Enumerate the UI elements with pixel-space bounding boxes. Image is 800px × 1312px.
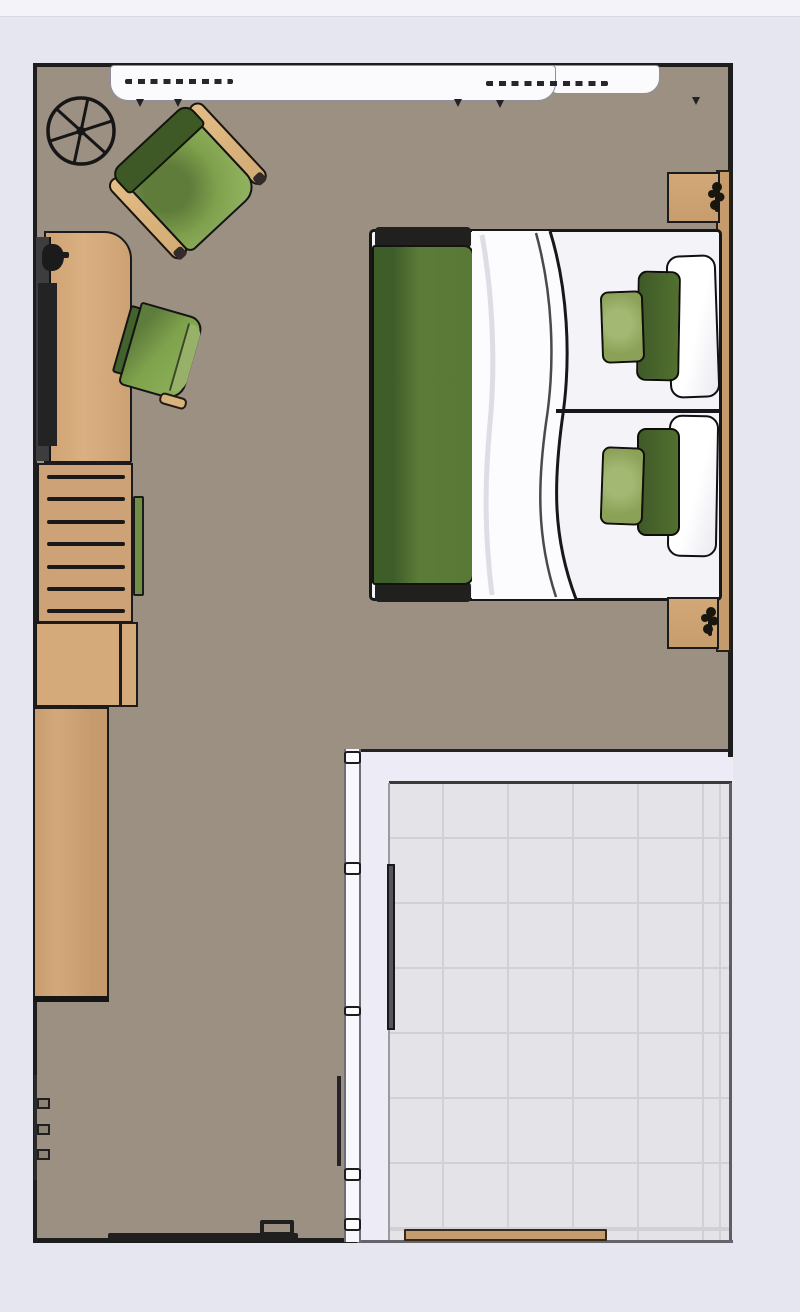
shelf-unit[interactable] <box>37 463 133 623</box>
wall-hooks[interactable] <box>34 1075 52 1180</box>
shelf-rung <box>47 587 125 591</box>
slider-cap <box>344 751 361 764</box>
curtain-tie-icon <box>692 97 700 105</box>
curtain-tie-icon <box>496 100 504 108</box>
armchair[interactable] <box>107 100 269 262</box>
plant-icon <box>700 178 728 220</box>
tile-border-top <box>389 781 732 784</box>
bath-mat[interactable] <box>404 1229 607 1241</box>
bathroom-door[interactable] <box>387 864 395 1030</box>
floor-plan-canvas <box>0 0 800 1312</box>
pillow-light-green <box>600 290 645 363</box>
curtain-hooks-left <box>125 79 233 84</box>
curtain-hooks-right <box>486 81 608 86</box>
shelf-rung <box>47 520 125 524</box>
bed-duvet <box>372 245 474 585</box>
hook-icon <box>37 1149 50 1160</box>
bathroom-tile-floor <box>389 783 731 1240</box>
desk-lamp-arm <box>60 252 69 258</box>
shelf-green-accent <box>133 496 144 596</box>
slider-cap <box>344 862 361 875</box>
sliding-door-handle[interactable] <box>260 1220 294 1236</box>
bed-foot-rail-bottom <box>375 582 471 602</box>
shelf-rung <box>47 497 125 501</box>
slider-cap <box>344 1006 361 1016</box>
tile-border-right <box>729 783 732 1242</box>
hook-icon <box>37 1124 50 1135</box>
dresser-divider <box>119 624 122 705</box>
shelf-rung <box>47 609 125 613</box>
bed-split-line <box>556 409 722 413</box>
curtain-tie-icon <box>454 99 462 107</box>
bathroom-wall-band-top <box>345 751 733 783</box>
slider-cap <box>344 1218 361 1231</box>
monitor-screen <box>38 283 57 446</box>
bed-blanket-fold <box>472 231 592 599</box>
dresser[interactable] <box>35 622 138 707</box>
window-curtain-rail[interactable] <box>548 65 660 94</box>
door-slider-strip[interactable] <box>344 749 361 1242</box>
wardrobe[interactable] <box>33 707 109 1002</box>
plant-icon <box>694 603 722 645</box>
bathroom-top-wall-line <box>345 749 733 752</box>
slider-cap <box>344 1168 361 1181</box>
shelf-rung <box>47 565 125 569</box>
pillow-light-green <box>600 446 646 525</box>
shelf-rung <box>47 542 125 546</box>
hook-icon <box>37 1098 50 1109</box>
shelf-rung <box>47 475 125 479</box>
top-strip <box>0 0 800 17</box>
door-track <box>337 1076 341 1166</box>
